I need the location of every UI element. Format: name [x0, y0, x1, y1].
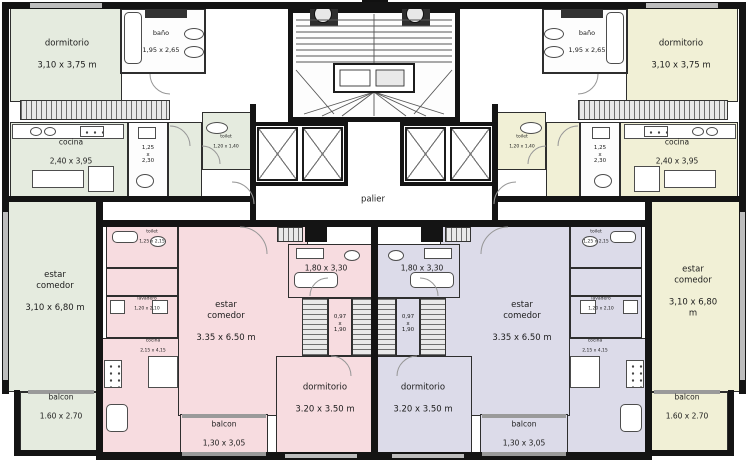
- label-estar-left: estar comedor 3,10 x 6,80 m: [25, 259, 84, 325]
- label-cocina-top-right: cocina 2,40 x 3,95: [656, 128, 699, 177]
- room-dims: 2,40 x 3,95: [656, 157, 699, 167]
- room-name: estar comedor: [666, 264, 721, 286]
- room-name: lavadero: [134, 298, 160, 303]
- shaft-entry-left: [305, 226, 327, 242]
- wall-balcony-right-bottom: [646, 450, 734, 456]
- wall-center-party: [371, 226, 378, 460]
- toilet-fixture: [544, 28, 564, 40]
- closet-bottom-right-b: [376, 298, 396, 356]
- room-dims: 1,20 x 2,10: [588, 307, 614, 312]
- label-estar-bottom-right: estar comedor 3.35 x 6.50 m: [492, 289, 551, 355]
- room-hall-top-right: [546, 122, 580, 198]
- room-name: palier: [361, 194, 385, 205]
- room-name: balcon: [40, 392, 83, 402]
- label-toilet-top-left: toilet 1,20 x 1,40: [213, 131, 239, 156]
- room-dims: 3,10 x 3,75 m: [651, 61, 710, 72]
- label-toilet-bottom-right: toilet 1,25 x 2,15: [583, 226, 609, 251]
- label-bano-top-left: baño 1,95 x 2,65: [143, 21, 180, 63]
- room-dims: 3.35 x 6.50 m: [196, 333, 255, 344]
- label-lavadero-bottom-left: lavadero 1,20 x 2,10: [134, 293, 160, 318]
- room-dims: 1,20 x 1,40: [509, 145, 535, 150]
- room-dims: 1,30 x 3,05: [503, 439, 546, 449]
- label-balcon-bottom-right: balcon 1,30 x 3,05: [503, 410, 546, 459]
- floor-plan: dormitorio 3,10 x 3,75 m baño 1,95 x 2,6…: [0, 0, 748, 472]
- room-dims: 1,30 x 3,05: [203, 439, 246, 449]
- window-dormitorio-top-left: [30, 3, 102, 8]
- room-name: toilet: [213, 136, 239, 141]
- wall-apt-top-right-bottom: [492, 196, 746, 202]
- window-dormitorio-bottom-left: [285, 454, 357, 458]
- room-dims: 0,97 x 1,90: [334, 315, 346, 334]
- bathtub-fixture: [606, 12, 624, 64]
- wardrobe-strip-top-right: [578, 100, 728, 120]
- fridge-fixture: [148, 356, 178, 388]
- room-name: cocina: [140, 340, 166, 345]
- room-dims: 1.60 x 2.70: [666, 412, 709, 422]
- label-balcon-left: balcon 1.60 x 2.70: [40, 383, 83, 432]
- room-name: estar comedor: [196, 300, 255, 322]
- elevator-car-4: [450, 127, 491, 181]
- wall-top: [2, 2, 746, 9]
- label-estar-right: estar comedor 3,10 x 6,80 m: [666, 253, 721, 330]
- room-dims: 2,40 x 3,95: [50, 157, 93, 167]
- room-dims: 3.35 x 6.50 m: [492, 333, 551, 344]
- room-dims: 1,20 x 2,10: [134, 307, 160, 312]
- label-pasillo-bottom-left: 0,97 x 1,90: [334, 308, 346, 340]
- room-dims: 1,80 x 3,30: [305, 263, 348, 273]
- sink-fixture: [138, 127, 156, 139]
- room-name: balcon: [666, 392, 709, 402]
- room-dims: 1,25 x 2,15: [139, 240, 165, 245]
- room-name: baño: [143, 29, 180, 37]
- elevator-car-3: [405, 127, 446, 181]
- room-dims: 3.20 x 3.50 m: [393, 405, 452, 416]
- sink-fixture: [620, 404, 642, 432]
- label-bano-top-right: baño 1,95 x 2,65: [569, 21, 606, 63]
- room-dims: 1,25 x 2,30: [594, 146, 606, 165]
- sink-fixture: [30, 127, 42, 136]
- room-name: balcon: [503, 419, 546, 429]
- wardrobe-strip-top-left: [20, 100, 170, 120]
- room-dims: 3,10 x 6,80 m: [666, 298, 721, 320]
- room-dims: 3,10 x 3,75 m: [37, 61, 96, 72]
- room-name: dormitorio: [651, 38, 710, 49]
- label-cocina-bottom-right: cocina 2,15 x 4,15: [582, 335, 608, 360]
- label-dormitorio-top-right: dormitorio 3,10 x 3,75 m: [651, 27, 710, 82]
- bidet-fixture: [544, 46, 564, 58]
- room-name: cocina: [50, 137, 93, 147]
- room-dims: 1,20 x 1,40: [213, 145, 239, 150]
- entry-closet-right: [445, 227, 471, 242]
- sink-fixture: [706, 127, 718, 136]
- room-dims: 1,95 x 2,65: [569, 46, 606, 54]
- label-bano-bottom-left: 1,80 x 3,30: [305, 253, 348, 282]
- label-cocina-bottom-left: cocina 2,15 x 4,15: [140, 335, 166, 360]
- wall-estar-left-party: [96, 198, 103, 460]
- room-name: dormitorio: [37, 38, 96, 49]
- room-name: toilet: [139, 231, 165, 236]
- shower-fixture: [610, 231, 636, 243]
- wall-apt-top-left-bottom: [2, 196, 256, 202]
- toilet-fixture: [594, 174, 612, 188]
- window-dormitorio-top-right: [646, 3, 718, 8]
- room-name: balcon: [203, 419, 246, 429]
- bidet-fixture: [184, 46, 204, 58]
- label-bano-bottom-right: 1,80 x 3,30: [401, 253, 444, 282]
- label-cocina-top-left: cocina 2,40 x 3,95: [50, 128, 93, 177]
- room-dims: 1,25 x 2,30: [142, 146, 154, 165]
- label-dormitorio-bottom-right: dormitorio 3.20 x 3.50 m: [393, 371, 452, 426]
- elevator-car-1: [257, 127, 298, 181]
- room-name: dormitorio: [295, 382, 354, 393]
- window-dormitorio-bottom-right: [392, 454, 464, 458]
- wall-core-right: [492, 104, 498, 224]
- duct-block-bano-left: [145, 9, 187, 18]
- label-toilet-top-right: toilet 1,20 x 1,40: [509, 131, 535, 156]
- room-dims: 1,25 x 2,15: [583, 240, 609, 245]
- elevator-car-2: [302, 127, 343, 181]
- room-name: dormitorio: [393, 382, 452, 393]
- toilet-fixture: [136, 174, 154, 188]
- room-name: estar comedor: [25, 270, 84, 292]
- fridge-fixture: [570, 356, 600, 388]
- toilet-fixture: [184, 28, 204, 40]
- room-name: lavadero: [588, 298, 614, 303]
- washer-fixture: [623, 300, 638, 314]
- label-lavadero-bottom-right: lavadero 1,20 x 2,10: [588, 293, 614, 318]
- sink-fixture: [592, 127, 610, 139]
- room-name: toilet: [583, 231, 609, 236]
- wall-balcony-right-outer: [728, 390, 734, 456]
- wall-balcony-left-outer: [14, 390, 20, 456]
- duct-block-bano-right: [561, 9, 603, 18]
- label-toilet-bottom-left: toilet 1,25 x 2,15: [139, 226, 165, 251]
- room-name: toilet: [509, 136, 535, 141]
- room-dims: 1,80 x 3,30: [401, 263, 444, 273]
- room-hall-top-left: [168, 122, 202, 198]
- room-name: estar comedor: [492, 300, 551, 322]
- label-balcon-right: balcon 1.60 x 2.70: [666, 383, 709, 432]
- room-dims: 3.20 x 3.50 m: [295, 405, 354, 416]
- stove-fixture: [104, 360, 122, 388]
- window-estar-right: [740, 212, 745, 380]
- closet-bottom-left-b: [352, 298, 372, 356]
- sink-fixture: [106, 404, 128, 432]
- wall-balcony-left-bottom: [14, 450, 102, 456]
- room-dims: 3,10 x 6,80 m: [25, 303, 84, 314]
- shaft-entry-right: [421, 226, 443, 242]
- room-name: cocina: [656, 137, 699, 147]
- room-dims: 1.60 x 2.70: [40, 412, 83, 422]
- label-estar-bottom-left: estar comedor 3.35 x 6.50 m: [196, 289, 255, 355]
- wall-core-left: [250, 104, 256, 224]
- stove-fixture: [626, 360, 644, 388]
- wall-estar-right-party: [645, 198, 652, 460]
- label-palier: palier: [361, 183, 385, 216]
- room-name: cocina: [582, 340, 608, 345]
- label-balcon-bottom-left: balcon 1,30 x 3,05: [203, 410, 246, 459]
- entry-closet-left: [277, 227, 303, 242]
- bathtub-fixture: [124, 12, 142, 64]
- closet-bottom-right-a: [420, 298, 446, 356]
- room-dims: 0,97 x 1,90: [402, 315, 414, 334]
- label-pasillo-bottom-right: 0,97 x 1,90: [402, 308, 414, 340]
- washer-fixture: [110, 300, 125, 314]
- room-name: baño: [569, 29, 606, 37]
- shower-fixture: [112, 231, 138, 243]
- label-dormitorio-bottom-left: dormitorio 3.20 x 3.50 m: [295, 371, 354, 426]
- closet-bottom-left-a: [302, 298, 328, 356]
- room-dims: 2,15 x 4,15: [140, 349, 166, 354]
- label-dormitorio-top-left: dormitorio 3,10 x 3,75 m: [37, 27, 96, 82]
- label-toilette-top-left: 1,25 x 2,30: [142, 139, 154, 171]
- room-dims: 1,95 x 2,65: [143, 46, 180, 54]
- room-dims: 2,15 x 4,15: [582, 349, 608, 354]
- window-estar-left: [3, 212, 8, 380]
- label-toilette-top-right: 1,25 x 2,30: [594, 139, 606, 171]
